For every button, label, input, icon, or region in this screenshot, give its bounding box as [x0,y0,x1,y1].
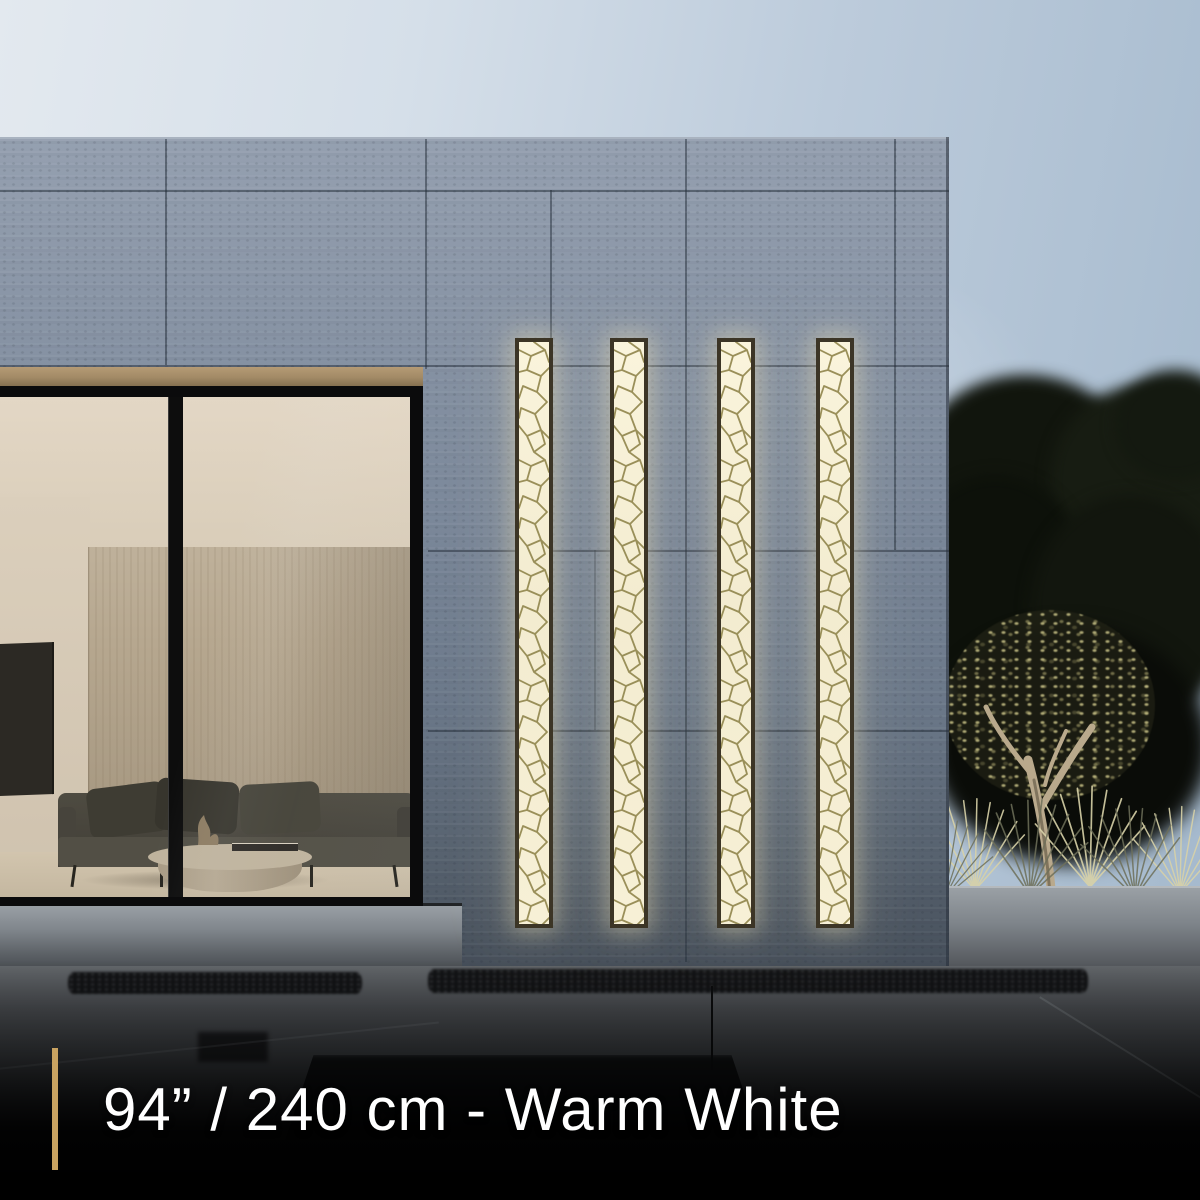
facade-joint-vertical [685,139,687,962]
garden [930,355,1200,935]
wood-soffit [0,367,423,386]
building-corner-edge [946,137,949,970]
led-wall-panel-3 [717,338,755,928]
product-photo: 94” / 240 cm - Warm White [0,0,1200,1200]
mosaic-crackle-pattern [519,342,549,924]
facade-joint-vertical [894,139,896,550]
facade-joint-horizontal [0,190,949,192]
glass-reflection [0,397,410,897]
window-glass [0,397,410,897]
led-wall-panel-4 [816,338,854,928]
caption-accent-bar [52,1048,58,1170]
facade-joint-vertical [165,139,167,365]
facade-joint-horizontal [428,730,949,732]
window-frame-right [410,386,423,906]
led-wall-panel-1 [515,338,553,928]
mosaic-crackle-pattern [614,342,644,924]
facade-joint-vertical [425,139,427,369]
glass-wall [0,367,423,906]
window-frame-top [0,386,423,397]
caption-text: 94” / 240 cm - Warm White [103,1056,1103,1162]
mosaic-crackle-pattern [820,342,850,924]
facade-joint-vertical [594,550,596,730]
facade-joint-horizontal [428,550,949,552]
led-wall-panel-2 [610,338,648,928]
window-frame-bottom [0,897,423,906]
mosaic-crackle-pattern [721,342,751,924]
